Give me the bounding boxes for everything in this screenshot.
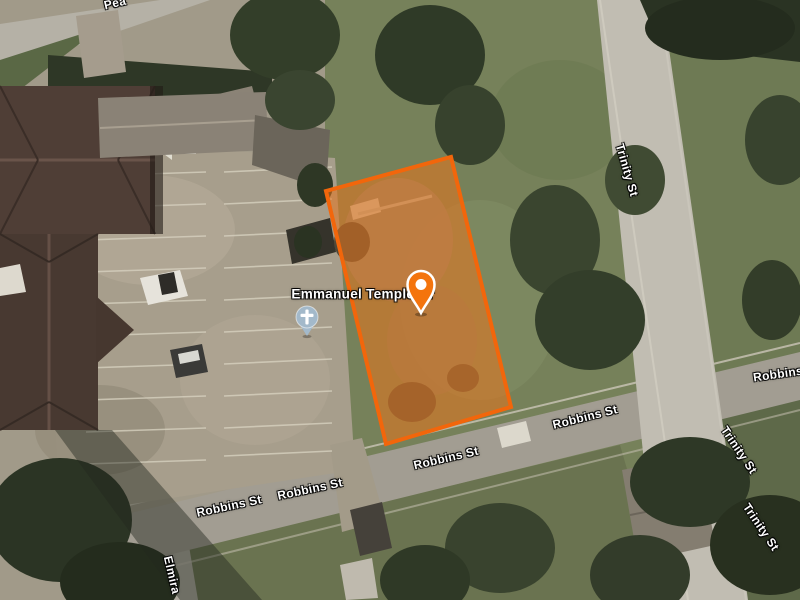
small-building [340,558,378,600]
tree-canopy [294,226,322,258]
satellite-map-canvas[interactable]: Pea Emmanuel Temple Or Trinity St Trinit… [0,0,800,600]
church-icon[interactable] [293,303,321,339]
location-pin[interactable] [403,266,439,318]
tree-canopy [265,70,335,130]
cross-icon [301,314,314,317]
tree-canopy [435,85,505,165]
pin-center-dot [416,279,427,290]
tree-canopy [742,260,800,340]
concrete-pad [76,10,126,78]
pin-body [408,271,435,313]
tree-canopy [535,270,645,370]
